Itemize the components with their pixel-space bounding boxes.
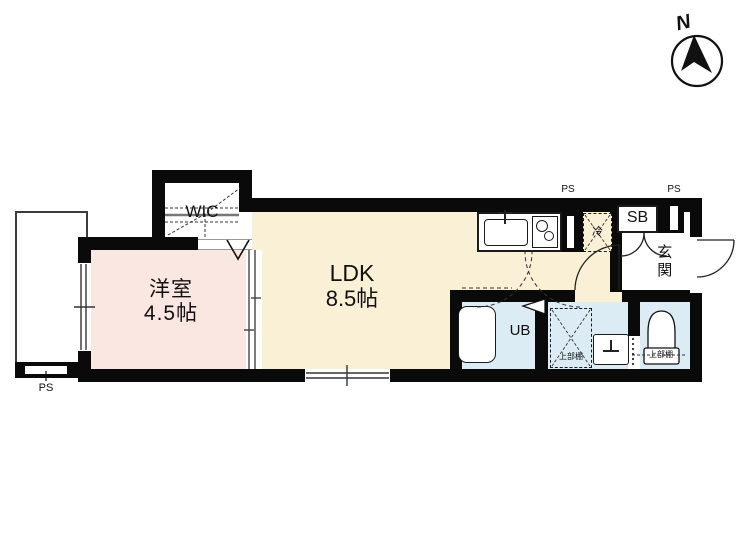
kitchen-sink — [484, 219, 528, 246]
bathtub — [458, 306, 496, 363]
wall-bottom-main — [78, 369, 702, 382]
ps-label-entrance: PS — [662, 184, 686, 196]
wic-threshold — [198, 239, 252, 250]
wall-kitchen-column — [562, 212, 583, 252]
pipe-space-slot-kitchen — [567, 216, 574, 248]
window-gap-bottom — [305, 369, 390, 382]
shoe-box-label: SB — [617, 209, 658, 227]
stove-burner-1 — [536, 220, 548, 232]
stove-burner-2 — [544, 231, 554, 241]
wall-sb-column — [656, 203, 684, 233]
wic-label: WIC — [165, 202, 239, 222]
pipe-space-slot-entrance — [670, 206, 678, 230]
wall-right-upper — [690, 198, 702, 238]
wall-toilet-divider — [628, 302, 640, 336]
wall-yoshitsu-left-lower — [78, 349, 91, 382]
ps-label-balcony: PS — [34, 382, 58, 395]
floorplan: N 洋室 4.5帖 LDK 8.5帖 WIC UB SB 玄関 冷 上部棚 上部… — [0, 0, 750, 550]
wall-wic-bottom — [152, 237, 198, 250]
unit-bath-label: UB — [500, 322, 540, 339]
front-door-gap — [690, 237, 702, 293]
ldk-size: 8.5帖 — [282, 286, 422, 311]
yoshitsu-name: 洋室 — [101, 278, 241, 302]
yoshitsu-room-label: 洋室 4.5帖 — [101, 278, 241, 326]
wall-wic-right — [239, 170, 252, 212]
ldk-room-label: LDK 8.5帖 — [282, 260, 422, 312]
wall-yoshitsu-left-upper — [78, 237, 91, 265]
front-door-arc — [697, 240, 734, 277]
washer-shelf-label: 上部棚 — [550, 352, 592, 361]
compass-icon — [672, 35, 722, 86]
wall-wic-top — [152, 170, 252, 183]
pipe-space-slot-balcony — [25, 366, 67, 374]
window-gap-left — [78, 263, 91, 351]
ldk-name: LDK — [282, 260, 422, 286]
wall-washroom-top-left — [450, 290, 575, 302]
compass-north-label: N — [674, 7, 709, 37]
sliding-door-track — [246, 250, 262, 369]
toilet-shelf-label: 上部棚 — [638, 350, 684, 359]
ps-label-kitchen: PS — [556, 184, 580, 196]
washbasin — [593, 334, 629, 365]
genkan-label: 玄関 — [655, 244, 672, 304]
refrigerator-label: 冷 — [583, 226, 612, 239]
yoshitsu-size: 4.5帖 — [101, 302, 241, 326]
